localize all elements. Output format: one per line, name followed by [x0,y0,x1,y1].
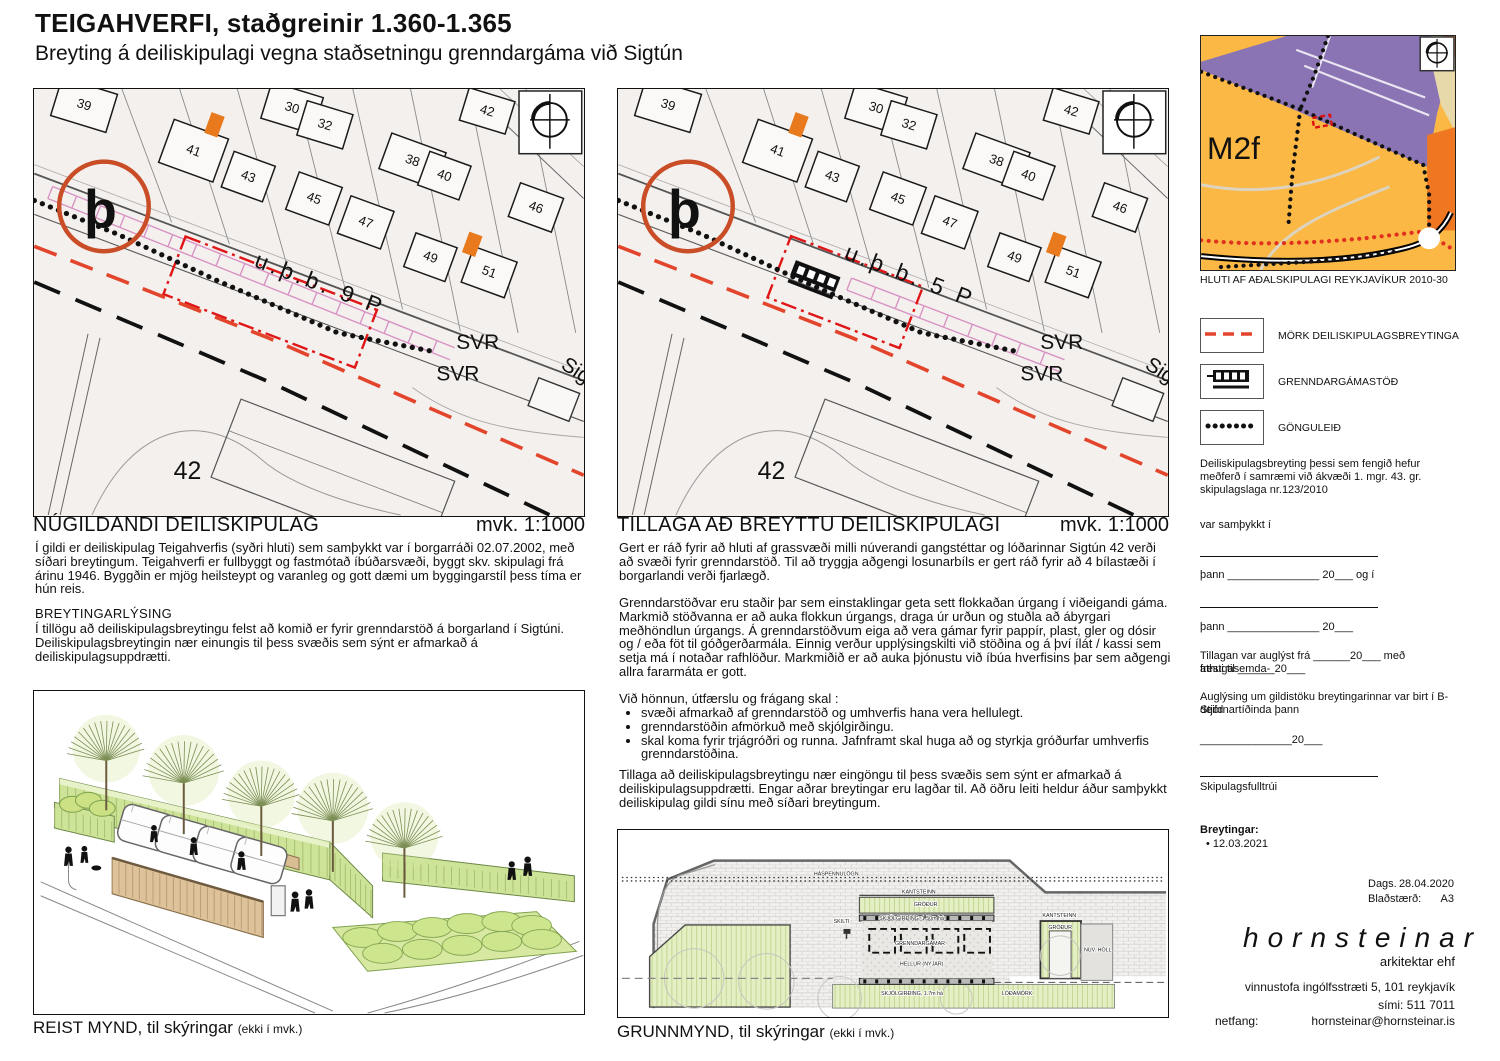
map-label: SVR [436,363,479,386]
proposed-plan-heading-row: TILLAGA AÐ BREYTTU DEILISKIPULAGI mvk. 1… [617,514,1169,537]
proposal-paragraph-1: Gert er ráð fyrir að hluti af grassvæði … [619,541,1171,582]
design-bullet-list: svæði afmarkað af grenndarstöð og umhver… [623,706,1189,761]
dags-label: Dags. [1368,878,1397,890]
signature-label: Skipulagsfulltrúi [1200,781,1458,794]
green-strip-bottom [833,984,1115,1008]
email-value[interactable]: hornsteinar@hornsteinar.is [1311,1014,1455,1028]
grunn-caption: GRUNNMYND, til skýringar (ekki í mvk.) [617,1022,894,1042]
current-plan-scale: mvk. 1:1000 [476,514,585,537]
map-label: SVR [1020,363,1063,386]
location-dot [1418,227,1440,249]
plan-annotation: NÚV. HÓLL [1084,947,1112,954]
approval-auglyst-2: fresti til ______20___ [1200,663,1458,676]
design-bullet: svæði afmarkað af grenndarstöð og umhver… [641,706,1189,720]
green-area-left [650,925,790,1007]
design-bullet: grenndarstöðin afmörkuð með skjólgirðing… [641,720,1189,734]
plan-annotation: SKJÓLGIRÐING, 1.7m há [881,990,943,997]
person-figure [305,889,314,908]
date-row: Dags. 28.04.2020 [1368,878,1454,890]
site-plan-drawing: HÁSPENNULÖGNKANTSTEINNGRÓÐURSKJÓLGIRÐING… [617,829,1169,1018]
legend-label: GRENNDARGÁMASTÖÐ [1278,376,1398,388]
legend-label: GÖNGULEIÐ [1278,422,1341,434]
map-label: SVR [456,331,499,354]
map-label: þ [84,179,117,239]
proposed-plan-map: 39303241434547384042464951u.þ.b. 5 PþSVR… [617,88,1169,517]
page-subtitle: Breyting á deiliskipulagi vegna staðsetn… [35,42,683,66]
sign-symbol [844,929,851,934]
reist-caption-text: REIST MYND, til skýringar [33,1018,233,1037]
proposal-paragraph-2: Grenndarstöðvar eru staðir þar sem einst… [619,596,1171,679]
compass-icon [519,91,582,154]
plan-annotation: HÁSPENNULÖGN [814,871,859,878]
size-label: Blaðstærð: [1368,893,1421,905]
plan-annotation: LÓÐAMÖRK [1002,990,1033,997]
approval-date-line: _______________20___ [1200,734,1458,747]
minimap-caption: HLUTI AF AÐALSKIPULAGI REYKJAVÍKUR 2010-… [1200,274,1458,286]
plan-annotation: KANTSTEINN [902,889,936,895]
firm-address: vinnustofa ingólfsstræti 5, 101 reykjaví… [1205,978,1455,1014]
person-figure [80,846,88,863]
map-label: SVR [1040,331,1083,354]
proposed-plan-scale: mvk. 1:1000 [1060,514,1169,537]
design-intro: Við hönnun, útfærslu og frágang skal : [619,692,1171,706]
container-station-icon [1200,364,1264,399]
reist-caption-note: (ekki í mvk.) [238,1022,303,1036]
plan-annotation: GRENNDARGÁMAR [895,940,945,947]
plan-annotation: KANTSTEINN [1042,913,1076,919]
email-label: netfang: [1215,1014,1258,1028]
perspective-drawing [33,690,585,1015]
reist-caption: REIST MYND, til skýringar (ekki í mvk.) [33,1018,302,1038]
sheet-size-row: Blaðstærð: A3 [1368,893,1454,905]
zone-code-label: M2f [1207,130,1260,166]
legend-row: MÖRK DEILISKIPULAGSBREYTINGA [1200,318,1459,353]
grunn-caption-note: (ekki í mvk.) [830,1026,895,1040]
approval-intro: Deiliskipulagsbreyting þessi sem fengið … [1200,458,1458,498]
proposed-plan-heading: TILLAGA AÐ BREYTTU DEILISKIPULAGI [617,514,1000,537]
legend-row: GÖNGULEIÐ [1200,410,1459,445]
plan-annotation: SKILTI [834,919,850,925]
current-plan-heading-row: NÚGILDANDI DEILISKIPULAG mvk. 1:1000 [33,514,585,537]
grunn-caption-text: GRUNNMYND, til skýringar [617,1022,825,1041]
page-title: TEIGAHVERFI, staðgreinir 1.360-1.365 [35,8,512,39]
size-value: A3 [1441,893,1454,905]
current-plan-description: Í gildi er deiliskipulag Teigahverfis (s… [35,541,587,596]
map-label: 42 [174,457,202,485]
current-plan-map: 39303241434547384042464951u.þ.b. 9 PþSVR… [33,88,585,517]
fill-line [1200,607,1378,608]
map-label: 42 [758,457,786,485]
plan-annotation: SKJÓLGIRÐING, 1.50m há [879,915,944,922]
firm-sub: arkitektar ehf [1255,954,1455,969]
proposal-paragraph-3: Tillaga að deiliskipulagsbreytingu nær e… [619,768,1171,809]
breytingar-item: • 12.03.2021 [1206,838,1464,851]
plan-annotation: GRÓÐUR [1048,924,1072,931]
approval-var-samthykkt: var samþykkt í [1200,519,1458,532]
legend-row: GRENNDARGÁMASTÖÐ [1200,364,1459,399]
email-row: netfang: hornsteinar@hornsteinar.is [1215,1014,1455,1028]
person-figure [290,891,299,911]
approval-thann-2: þann _______________ 20___ [1200,621,1458,634]
plan-annotation: GRÓÐUR [914,901,938,908]
compass-icon [1420,37,1454,71]
hedge-corner [330,842,373,918]
address-line: vinnustofa ingólfsstræti 5, 101 reykjaví… [1205,978,1455,996]
dags-value: 28.04.2020 [1399,878,1454,890]
red-dashed-line-icon [1200,318,1264,353]
map-label: þ [668,179,701,239]
current-plan-heading: NÚGILDANDI DEILISKIPULAG [33,514,319,537]
legend-label: MÖRK DEILISKIPULAGSBREYTINGA [1278,330,1459,342]
dog-figure [91,865,101,870]
breytingarlysing-heading: BREYTINGARLÝSING [35,606,172,621]
breytingarlysing-text: Í tillögu að deiliskipulagsbreytingu fel… [35,622,587,663]
design-bullet: skal koma fyrir trjágróðri og runna. Jaf… [641,734,1189,762]
breytingar-heading: Breytingar: [1200,824,1458,837]
legend: MÖRK DEILISKIPULAGSBREYTINGAGRENNDARGÁMA… [1200,318,1459,445]
phone-line: sími: 511 7011 [1205,996,1455,1014]
fill-line [1200,556,1378,557]
approval-gildistaka-2: Stjórnartíðinda þann [1200,704,1458,717]
bush-field [333,912,576,972]
approval-thann-1: þann _______________ 20___ og í [1200,569,1458,582]
master-plan-minimap: M2f [1200,35,1456,271]
compass-icon [1103,91,1166,154]
firm-logo: hornsteinar [1243,922,1482,954]
plan-annotation: HELLUR (NÝJAR) [900,961,944,968]
signature-line [1200,776,1378,777]
dotted-line-icon [1200,410,1264,445]
